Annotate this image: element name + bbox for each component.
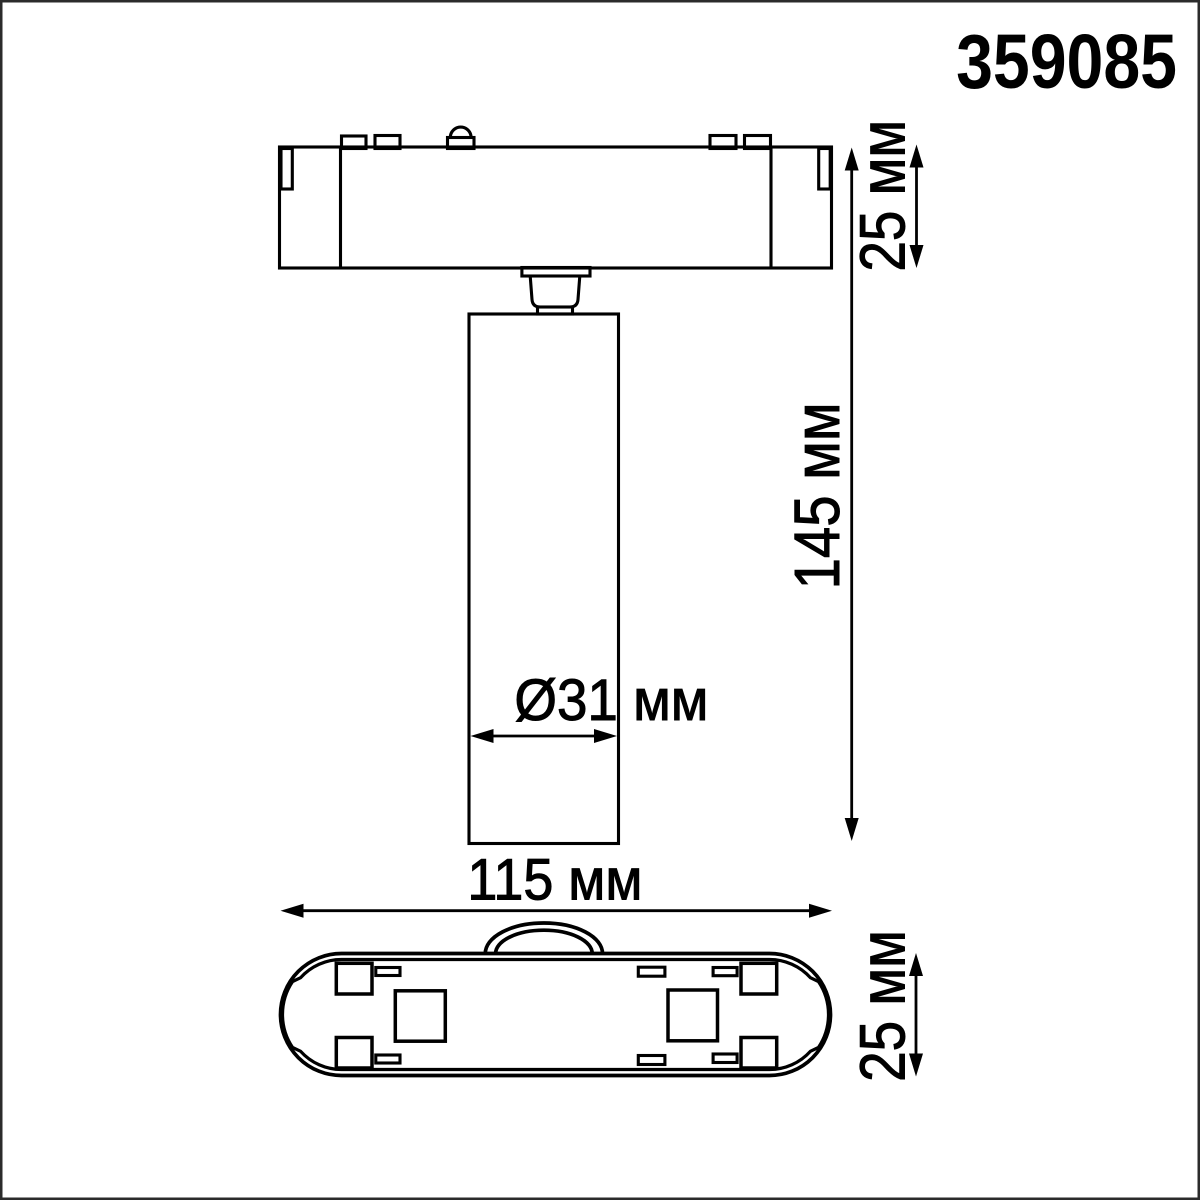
svg-text:145 мм: 145 мм (781, 402, 853, 589)
svg-text:25 мм: 25 мм (847, 120, 919, 272)
svg-text:Ø31 мм: Ø31 мм (514, 668, 708, 733)
svg-text:359085: 359085 (956, 19, 1177, 105)
svg-text:115 мм: 115 мм (467, 847, 642, 912)
svg-text:25 мм: 25 мм (847, 930, 919, 1082)
